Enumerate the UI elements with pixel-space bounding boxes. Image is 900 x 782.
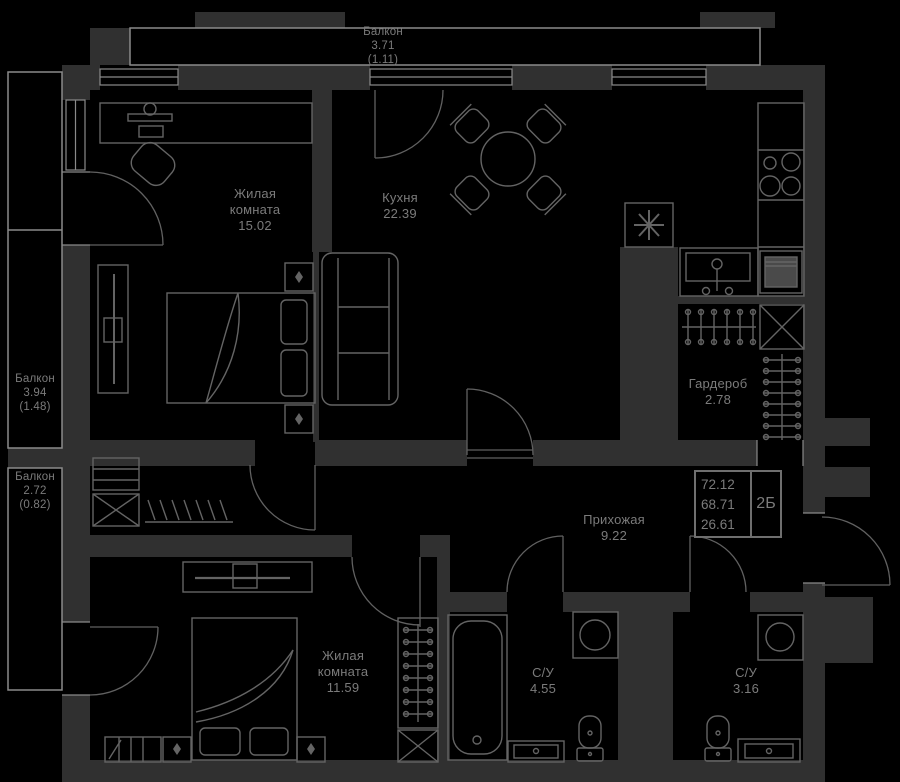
unit-area-kitchen: 26.61 (701, 517, 750, 532)
room-name: Прихожая (566, 512, 662, 528)
toilet-2 (705, 716, 731, 761)
room-name: Балкон (328, 25, 438, 39)
toilet-1 (577, 716, 603, 761)
room-name: Балкон (5, 470, 65, 484)
washing-machine-2 (758, 615, 803, 660)
tv-unit-2 (183, 562, 312, 592)
room-name: Кухня (355, 190, 445, 206)
room-label-living1: Жилая комната 15.02 (213, 186, 297, 234)
nightstand (285, 405, 313, 433)
door-living1-hall (250, 465, 315, 530)
unit-info-box: 72.12 68.71 26.61 2Б (694, 470, 782, 538)
room-area: 3.16 (711, 681, 781, 697)
room-area-reduced: (1.48) (5, 400, 65, 414)
wardrobe-2 (398, 618, 438, 728)
nightstand (285, 263, 313, 291)
floor-plan: Балкон 3.71 (1.11) Жилая комната 15.02 К… (0, 0, 900, 782)
neighbor-walls (825, 418, 873, 663)
door-kitchen-hall (467, 389, 533, 458)
room-name: Гардероб (673, 376, 763, 392)
room-name: С/У (711, 665, 781, 681)
room-label-bath1: С/У 4.55 (508, 665, 578, 697)
kitchen-sink (680, 248, 758, 296)
room-label-bath2: С/У 3.16 (711, 665, 781, 697)
room-area: 3.94 (5, 386, 65, 400)
desk (100, 103, 312, 143)
coat-rail (145, 500, 233, 522)
room-area: 3.71 (328, 39, 438, 53)
bed-2 (192, 618, 297, 760)
unit-area-living: 68.71 (701, 497, 750, 512)
wardrobe-x-box (398, 730, 438, 762)
hanger-rail-horizontal (682, 310, 756, 345)
room-area: 9.22 (566, 528, 662, 544)
stove-burners (760, 153, 800, 196)
room-label-wardrobe: Гардероб 2.78 (673, 376, 763, 408)
door-bedroom2 (352, 557, 420, 627)
room-label-balcony-top: Балкон 3.71 (1.11) (328, 25, 438, 67)
nightstand (163, 737, 191, 762)
dining-table (450, 104, 566, 215)
room-name: Балкон (5, 372, 65, 386)
room-area: 4.55 (508, 681, 578, 697)
room-label-kitchen: Кухня 22.39 (355, 190, 445, 222)
room-label-balcony-left-2: Балкон 2.72 (0.82) (5, 470, 65, 512)
room-area: 22.39 (355, 206, 445, 222)
dresser (105, 737, 161, 762)
room-area: 11.59 (301, 680, 385, 696)
door-kitchen-balcony (375, 90, 443, 158)
nightstand (297, 737, 325, 762)
room-area: 2.78 (673, 392, 763, 408)
room-label-balcony-left-1: Балкон 3.94 (1.48) (5, 372, 65, 414)
room-area-reduced: (0.82) (5, 498, 65, 512)
fridge (760, 251, 802, 293)
furniture (93, 103, 804, 762)
door-living1-balcony (90, 172, 163, 245)
bathtub (448, 615, 507, 760)
unit-areas: 72.12 68.71 26.61 (696, 472, 752, 536)
door-entrance (822, 517, 890, 585)
sink-1 (508, 741, 564, 762)
door-bath2 (690, 536, 746, 592)
unit-type-tag: 2Б (752, 472, 780, 536)
door-bath1 (507, 536, 563, 592)
tv-unit-1 (98, 265, 128, 393)
room-name: С/У (508, 665, 578, 681)
bed-1 (167, 293, 315, 403)
room-area: 2.72 (5, 484, 65, 498)
room-area-reduced: (1.11) (328, 53, 438, 67)
sofa (322, 253, 398, 405)
room-area: 15.02 (213, 218, 297, 234)
washing-machine (573, 612, 618, 658)
room-name: Жилая комната (301, 648, 385, 680)
room-name: Жилая комната (213, 186, 297, 218)
unit-area-total: 72.12 (701, 477, 750, 492)
hall-x-box (93, 494, 139, 526)
vent-shaft-icon (625, 203, 673, 247)
desk-chair (127, 138, 179, 190)
room-label-hallway: Прихожая 9.22 (566, 512, 662, 544)
sink-2 (738, 739, 800, 762)
shaft-x-box (760, 305, 804, 349)
room-label-living2: Жилая комната 11.59 (301, 648, 385, 696)
hanger-rail-vertical (764, 354, 801, 440)
door-bedroom2-balcony (90, 627, 158, 695)
